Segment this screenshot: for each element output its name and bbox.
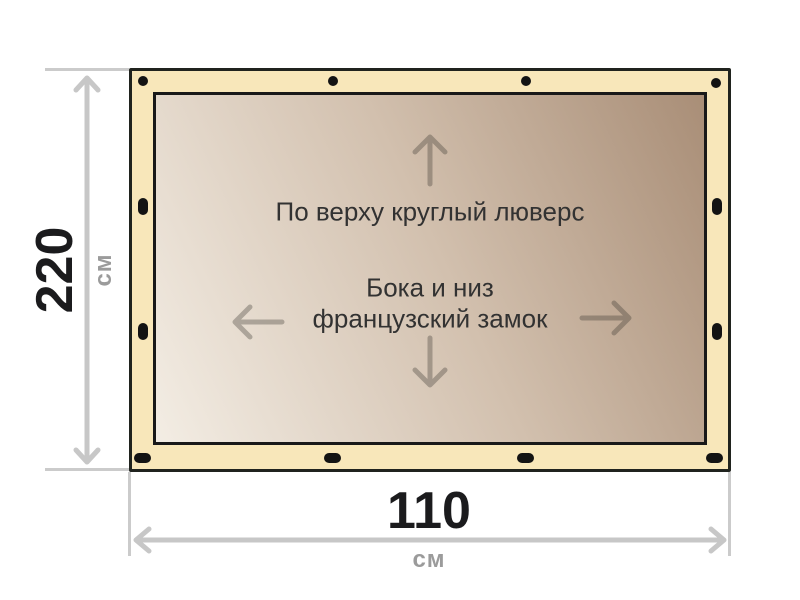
height-dimension-tick-top (45, 68, 129, 71)
curtain-size-diagram: По верху круглый люверс Бока и низ франц… (0, 0, 800, 600)
arrow-down-icon (408, 334, 452, 392)
grommet-icon (138, 198, 148, 215)
height-dimension-unit: см (90, 253, 118, 286)
grommet-icon (324, 453, 341, 463)
grommet-icon (712, 323, 722, 340)
arrow-left-icon (228, 300, 286, 344)
sides-note-line2: французский замок (313, 304, 548, 335)
grommet-icon (138, 323, 148, 340)
arrow-right-icon (578, 296, 636, 340)
grommet-icon (134, 453, 151, 463)
height-dimension-value: 220 (25, 227, 85, 314)
grommet-icon (711, 78, 721, 88)
grommet-icon (517, 453, 534, 463)
grommet-icon (328, 76, 338, 86)
arrow-up-icon (408, 130, 452, 188)
grommet-icon (138, 76, 148, 86)
grommet-icon (521, 76, 531, 86)
width-dimension-unit: см (412, 546, 445, 574)
top-edge-note: По верху круглый люверс (276, 197, 585, 228)
sides-note-line1: Бока и низ (366, 273, 494, 304)
width-dimension-value: 110 (387, 481, 471, 541)
grommet-icon (712, 198, 722, 215)
grommet-icon (706, 453, 723, 463)
height-dimension-tick-bottom (45, 468, 129, 471)
